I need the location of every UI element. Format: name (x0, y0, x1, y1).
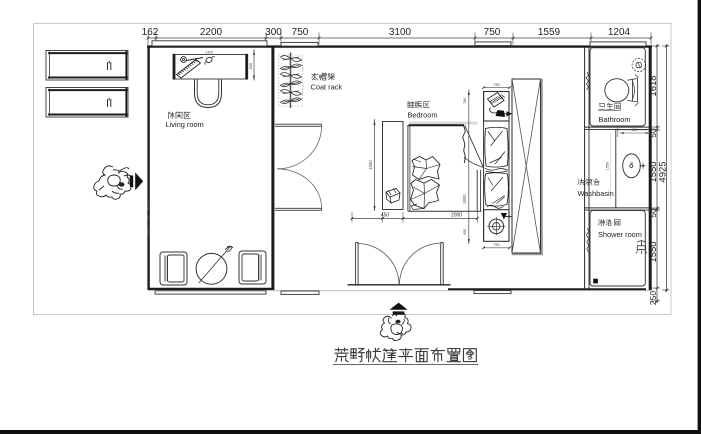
svg-text:2200: 2200 (200, 27, 223, 38)
svg-text:750: 750 (493, 243, 499, 247)
svg-text:Bathroom: Bathroom (599, 115, 631, 124)
svg-text:Shower room: Shower room (598, 230, 642, 239)
svg-text:Coat rack: Coat rack (311, 83, 343, 92)
svg-text:1500: 1500 (368, 160, 373, 170)
svg-text:2000: 2000 (451, 212, 462, 218)
svg-text:750: 750 (292, 27, 309, 38)
svg-text:4925: 4925 (657, 161, 668, 182)
svg-text:450: 450 (463, 229, 467, 235)
svg-text:Bedroom: Bedroom (408, 110, 438, 119)
svg-text:Living room: Living room (166, 120, 204, 129)
svg-text:162: 162 (142, 27, 159, 38)
svg-text:1400: 1400 (205, 51, 213, 55)
svg-text:450: 450 (381, 212, 390, 218)
svg-text:1559: 1559 (538, 27, 561, 38)
svg-text:750: 750 (493, 83, 499, 87)
svg-text:600: 600 (249, 63, 253, 69)
svg-text:780: 780 (463, 98, 467, 104)
svg-text:1800: 1800 (462, 194, 467, 204)
svg-text:300: 300 (265, 27, 282, 38)
svg-text:1550: 1550 (606, 162, 610, 170)
svg-text:250: 250 (648, 291, 658, 305)
svg-text:3100: 3100 (389, 27, 412, 38)
svg-text:750: 750 (484, 27, 501, 38)
svg-text:1204: 1204 (608, 27, 631, 38)
svg-text:450: 450 (631, 128, 637, 132)
svg-text:Washbasin: Washbasin (578, 189, 614, 198)
